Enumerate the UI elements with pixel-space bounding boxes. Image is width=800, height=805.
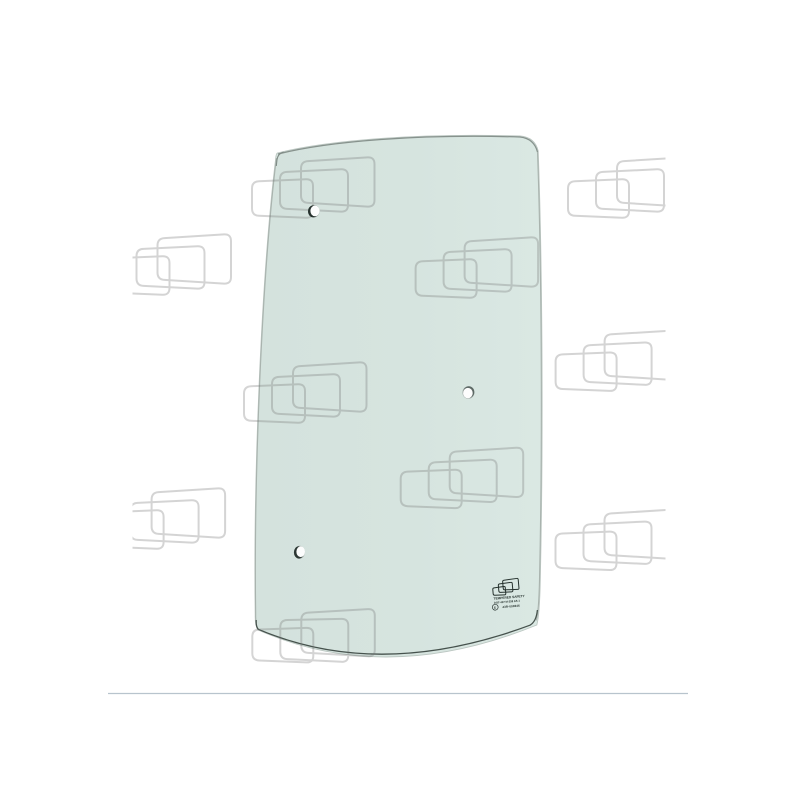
svg-text:E: E	[494, 606, 496, 610]
